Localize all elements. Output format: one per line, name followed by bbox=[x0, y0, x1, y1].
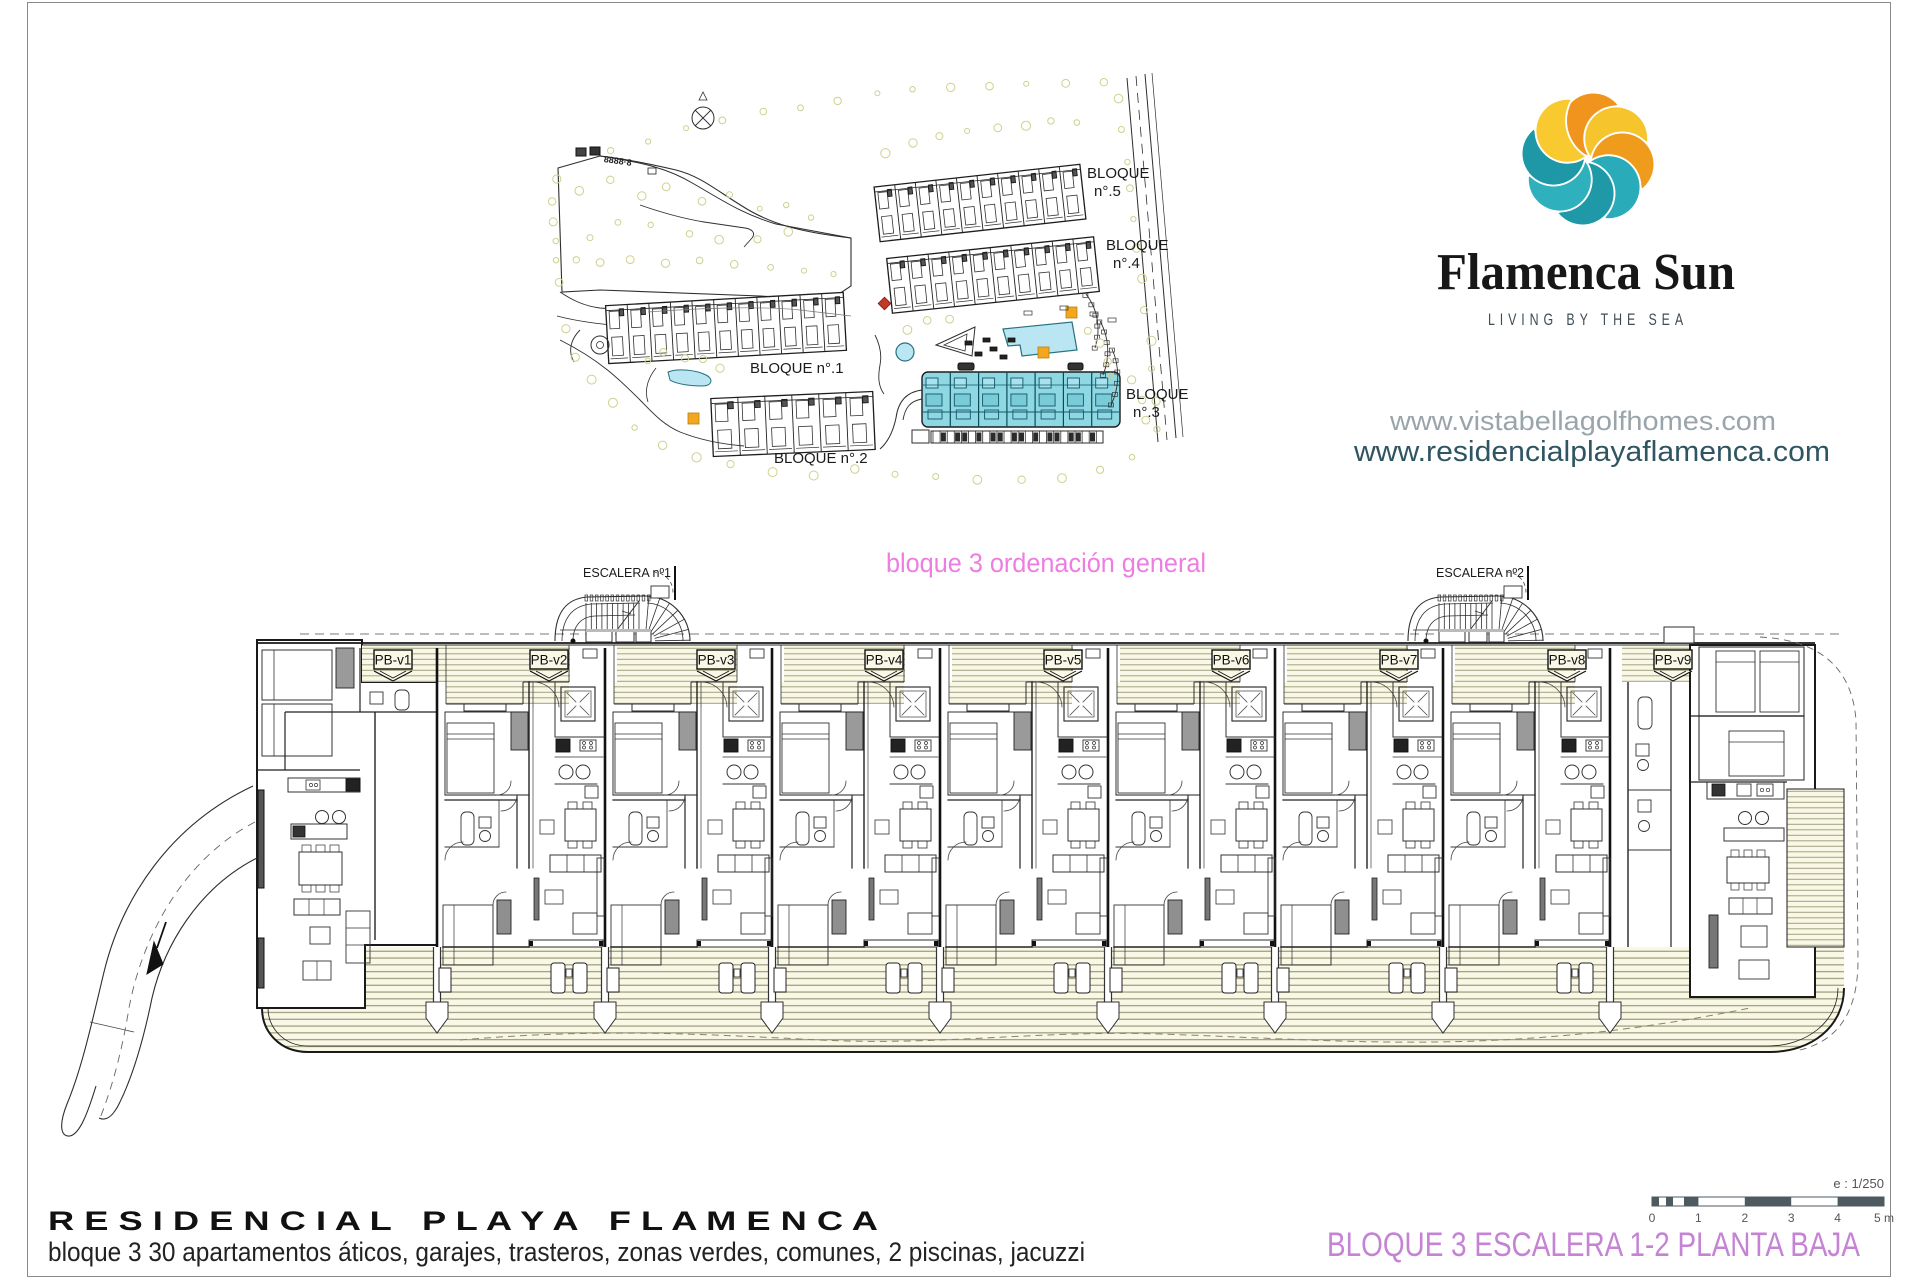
svg-text:e : 1/250: e : 1/250 bbox=[1833, 1176, 1884, 1191]
svg-text:0: 0 bbox=[1649, 1211, 1656, 1225]
svg-text:PB-v7: PB-v7 bbox=[1381, 653, 1418, 668]
svg-text:3: 3 bbox=[1788, 1211, 1795, 1225]
svg-text:www.vistabellagolfhomes.com: www.vistabellagolfhomes.com bbox=[1389, 406, 1776, 436]
svg-text:BLOQUE n°.2: BLOQUE n°.2 bbox=[774, 450, 868, 467]
svg-text:BLOQUE: BLOQUE bbox=[1126, 386, 1189, 403]
svg-text:ESCALERA nº1: ESCALERA nº1 bbox=[583, 566, 671, 580]
svg-text:PB-v8: PB-v8 bbox=[1549, 653, 1586, 668]
svg-text:n°.5: n°.5 bbox=[1094, 183, 1121, 200]
svg-text:8888·8: 8888·8 bbox=[603, 154, 632, 168]
svg-text:BLOQUE: BLOQUE bbox=[1087, 165, 1150, 182]
svg-text:4: 4 bbox=[1834, 1211, 1841, 1225]
svg-text:PB-v6: PB-v6 bbox=[1213, 653, 1250, 668]
svg-text:LIVING BY THE SEA: LIVING BY THE SEA bbox=[1488, 311, 1688, 329]
svg-text:www.residencialplayaflamenca.c: www.residencialplayaflamenca.com bbox=[1353, 436, 1830, 468]
svg-text:PB-v3: PB-v3 bbox=[698, 653, 735, 668]
svg-text:n°.3: n°.3 bbox=[1133, 404, 1160, 421]
svg-text:PB-v9: PB-v9 bbox=[1655, 653, 1692, 668]
svg-text:bloque 3 ordenación general: bloque 3 ordenación general bbox=[886, 548, 1206, 578]
svg-text:BLOQUE 3 ESCALERA 1-2 PLANTA: BLOQUE 3 ESCALERA 1-2 PLANTA BAJA bbox=[1327, 1226, 1860, 1264]
svg-text:PB-v1: PB-v1 bbox=[375, 653, 412, 668]
svg-text:2: 2 bbox=[1741, 1211, 1748, 1225]
svg-text:5 m: 5 m bbox=[1874, 1211, 1894, 1225]
svg-text:BLOQUE n°.1: BLOQUE n°.1 bbox=[750, 360, 844, 377]
svg-text:ESCALERA nº2: ESCALERA nº2 bbox=[1436, 566, 1524, 580]
svg-text:R E S I D E N C I A L P L A: R E S I D E N C I A L P L A Y A F L A M … bbox=[48, 1206, 878, 1236]
svg-text:n°.4: n°.4 bbox=[1113, 255, 1140, 272]
svg-text:Flamenca Sun: Flamenca Sun bbox=[1437, 244, 1735, 301]
svg-text:PB-v4: PB-v4 bbox=[866, 653, 903, 668]
svg-text:PB-v2: PB-v2 bbox=[531, 653, 568, 668]
svg-text:1: 1 bbox=[1695, 1211, 1702, 1225]
svg-text:BLOQUE: BLOQUE bbox=[1106, 237, 1169, 254]
svg-text:PB-v5: PB-v5 bbox=[1045, 653, 1082, 668]
svg-text:bloque 3 30 apartamentos átic: bloque 3 30 apartamentos áticos, garajes… bbox=[48, 1237, 1085, 1267]
